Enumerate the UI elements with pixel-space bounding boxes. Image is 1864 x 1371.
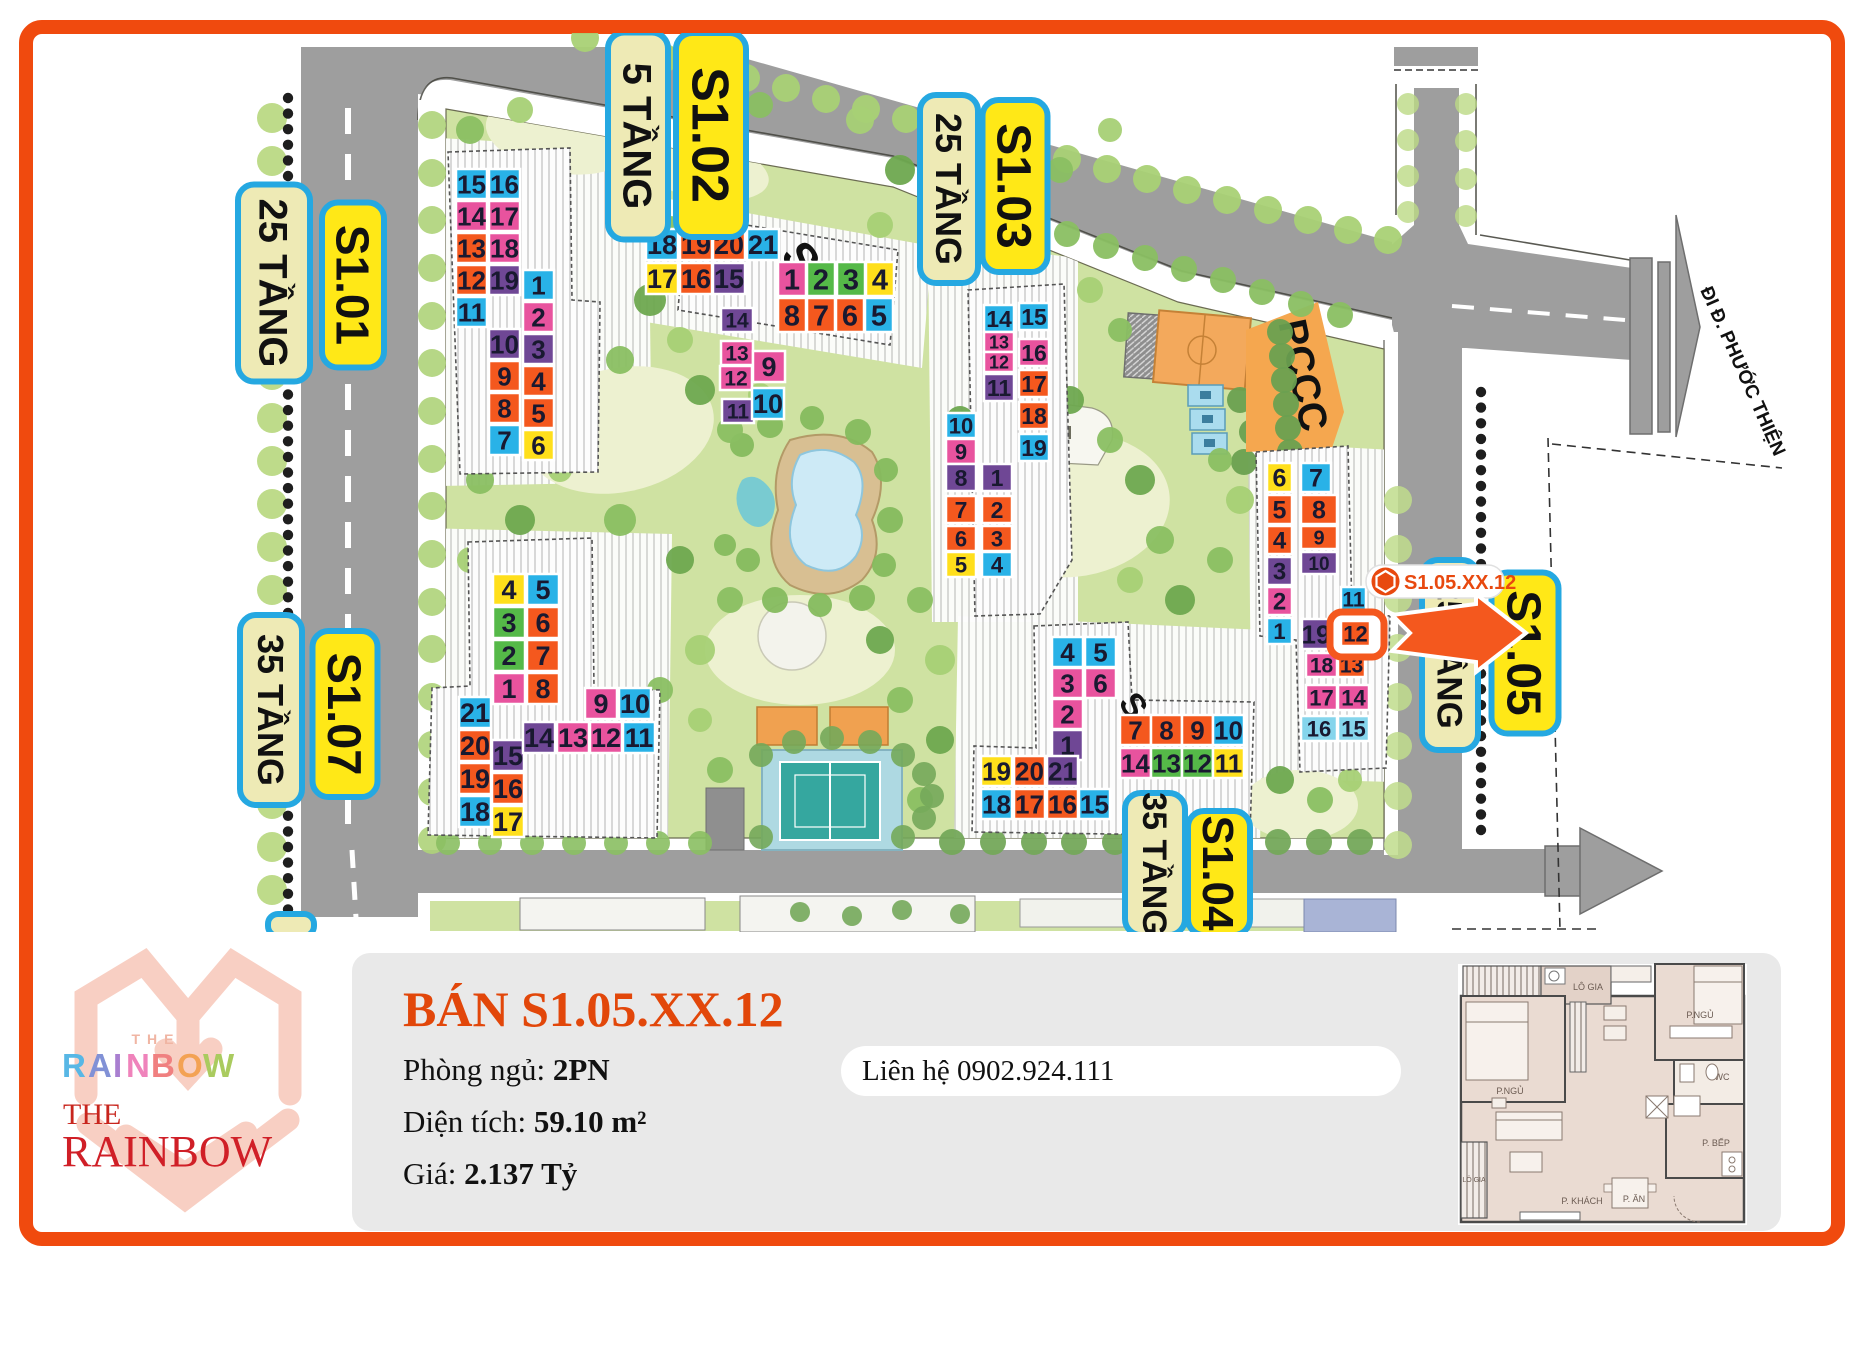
svg-text:16: 16 [493, 774, 523, 804]
svg-text:25 TẦNG: 25 TẦNG [928, 113, 969, 265]
svg-text:18: 18 [1021, 403, 1047, 429]
svg-text:10: 10 [949, 413, 973, 438]
svg-text:BÁN S1.05.XX.12: BÁN S1.05.XX.12 [403, 981, 784, 1037]
svg-text:THE: THE [132, 1031, 181, 1047]
svg-text:11: 11 [625, 723, 654, 753]
svg-text:15: 15 [493, 741, 523, 771]
svg-text:10: 10 [620, 689, 650, 719]
svg-text:4: 4 [501, 575, 516, 605]
svg-text:S1.03: S1.03 [987, 123, 1040, 248]
svg-text:14: 14 [1341, 685, 1366, 710]
svg-text:17: 17 [1021, 371, 1047, 397]
svg-text:8: 8 [497, 393, 511, 423]
svg-text:11: 11 [1215, 748, 1243, 778]
svg-text:5: 5 [1273, 497, 1287, 525]
svg-text:S1.04: S1.04 [1193, 816, 1242, 932]
svg-text:20: 20 [1015, 756, 1044, 786]
svg-text:9: 9 [1313, 528, 1324, 550]
svg-text:5: 5 [955, 552, 967, 577]
svg-text:11: 11 [458, 297, 486, 327]
svg-text:RAINBOW: RAINBOW [62, 1127, 273, 1176]
svg-text:4: 4 [1273, 528, 1287, 555]
svg-text:10: 10 [1214, 715, 1243, 745]
svg-text:13: 13 [558, 723, 588, 753]
svg-text:9: 9 [1190, 715, 1204, 745]
svg-text:18: 18 [460, 797, 490, 827]
svg-text:2: 2 [501, 641, 516, 671]
svg-text:7: 7 [1309, 465, 1323, 493]
svg-text:17: 17 [1015, 789, 1044, 819]
svg-text:14: 14 [725, 310, 749, 333]
svg-text:13: 13 [1152, 748, 1181, 778]
svg-text:2: 2 [531, 302, 545, 332]
svg-text:15: 15 [714, 264, 744, 294]
svg-text:21: 21 [748, 230, 778, 260]
svg-text:17: 17 [647, 264, 677, 294]
svg-text:16: 16 [1307, 716, 1331, 741]
svg-text:14: 14 [986, 306, 1012, 332]
svg-text:15: 15 [1021, 304, 1047, 330]
svg-text:P. BẾP: P. BẾP [1702, 1138, 1730, 1148]
svg-text:7: 7 [813, 300, 829, 332]
svg-text:1: 1 [531, 270, 545, 300]
svg-text:7: 7 [955, 497, 968, 523]
svg-text:19: 19 [460, 764, 490, 794]
svg-text:S1.07: S1.07 [318, 653, 371, 776]
svg-text:Diện tích: 59.10 m²: Diện tích: 59.10 m² [403, 1104, 646, 1139]
svg-text:Phòng ngủ: 2PN: Phòng ngủ: 2PN [403, 1052, 610, 1087]
svg-text:14: 14 [457, 201, 486, 231]
svg-text:18: 18 [1310, 655, 1334, 678]
svg-text:7: 7 [535, 641, 550, 671]
svg-text:4: 4 [531, 366, 546, 396]
svg-text:3: 3 [843, 264, 859, 296]
svg-text:9: 9 [955, 439, 967, 464]
svg-text:19: 19 [982, 756, 1011, 786]
svg-text:12: 12 [724, 368, 747, 391]
svg-text:13: 13 [989, 332, 1009, 352]
svg-text:16: 16 [1021, 340, 1047, 366]
svg-text:8: 8 [1159, 715, 1173, 745]
svg-text:P. ĂN: P. ĂN [1623, 1194, 1645, 1204]
svg-text:5: 5 [535, 575, 550, 605]
svg-text:Liên hệ 0902.924.111: Liên hệ 0902.924.111 [862, 1055, 1114, 1087]
svg-text:14: 14 [1121, 748, 1150, 778]
svg-text:10: 10 [753, 389, 783, 419]
svg-text:3: 3 [501, 608, 516, 638]
svg-text:4: 4 [1060, 637, 1075, 667]
svg-text:11: 11 [1342, 589, 1365, 612]
svg-text:19: 19 [1302, 619, 1331, 649]
svg-text:10: 10 [490, 329, 519, 359]
svg-text:21: 21 [1048, 756, 1077, 786]
svg-text:S1.05.XX.12: S1.05.XX.12 [1404, 572, 1516, 594]
svg-text:9: 9 [761, 352, 776, 382]
svg-text:2: 2 [991, 497, 1004, 523]
svg-text:13: 13 [725, 343, 748, 366]
svg-text:7: 7 [1128, 715, 1142, 745]
svg-text:11: 11 [987, 375, 1012, 401]
svg-text:16: 16 [490, 169, 519, 199]
svg-text:19: 19 [490, 265, 519, 295]
svg-text:5: 5 [871, 300, 887, 332]
svg-text:17: 17 [1309, 685, 1333, 710]
svg-text:3: 3 [991, 526, 1003, 551]
svg-text:2: 2 [1060, 699, 1074, 729]
svg-text:P.NGỦ: P.NGỦ [1496, 1085, 1523, 1096]
svg-text:18: 18 [490, 233, 519, 263]
svg-text:1: 1 [784, 264, 800, 296]
svg-text:20: 20 [460, 731, 490, 761]
svg-text:1: 1 [501, 674, 516, 704]
svg-text:12: 12 [1343, 621, 1367, 646]
svg-text:3: 3 [1060, 668, 1074, 698]
svg-text:4: 4 [991, 552, 1004, 577]
svg-text:6: 6 [1273, 465, 1287, 493]
svg-text:12: 12 [457, 265, 486, 295]
svg-text:6: 6 [535, 608, 550, 638]
svg-text:18: 18 [982, 789, 1011, 819]
svg-text:1: 1 [1273, 619, 1285, 644]
svg-text:6: 6 [531, 430, 545, 460]
svg-text:15: 15 [1341, 716, 1365, 741]
svg-text:15: 15 [1080, 789, 1109, 819]
svg-text:15: 15 [457, 169, 486, 199]
svg-text:LÔ GIA: LÔ GIA [1462, 1175, 1486, 1184]
svg-text:21: 21 [460, 698, 490, 728]
svg-text:Giá: 2.137 Tỷ: Giá: 2.137 Tỷ [403, 1156, 578, 1191]
svg-text:2: 2 [813, 264, 829, 296]
svg-text:3: 3 [531, 334, 545, 364]
svg-text:S1.01: S1.01 [326, 225, 378, 345]
svg-text:16: 16 [1048, 789, 1077, 819]
svg-text:14: 14 [524, 723, 554, 753]
svg-text:9: 9 [497, 361, 511, 391]
svg-text:7: 7 [497, 425, 511, 455]
svg-text:16: 16 [681, 264, 711, 294]
svg-text:5: 5 [531, 398, 545, 428]
svg-text:35 TẦNG: 35 TẦNG [250, 634, 291, 786]
svg-text:12: 12 [989, 352, 1009, 372]
svg-text:8: 8 [1312, 497, 1326, 525]
svg-text:S1.05: S1.05 [1497, 590, 1550, 715]
svg-text:1: 1 [991, 465, 1004, 491]
svg-text:8: 8 [784, 300, 800, 332]
svg-text:8: 8 [535, 674, 550, 704]
svg-text:13: 13 [457, 233, 486, 263]
svg-text:17: 17 [490, 201, 519, 231]
svg-text:25 TẦNG: 25 TẦNG [251, 199, 297, 368]
svg-text:P.NGỦ: P.NGỦ [1686, 1009, 1713, 1020]
svg-text:8: 8 [955, 465, 968, 491]
svg-text:R A I N B O W: R A I N B O W [62, 1047, 235, 1084]
svg-text:11: 11 [727, 401, 750, 424]
svg-text:6: 6 [955, 526, 967, 551]
svg-text:S1.02: S1.02 [680, 67, 738, 203]
svg-text:19: 19 [1021, 435, 1047, 461]
svg-text:3: 3 [1273, 559, 1286, 586]
svg-text:9: 9 [593, 689, 608, 719]
svg-text:5 TẦNG: 5 TẦNG [615, 63, 661, 210]
svg-text:6: 6 [842, 300, 858, 332]
svg-text:5: 5 [1093, 637, 1107, 667]
svg-text:35 TẦNG: 35 TẦNG [1135, 792, 1173, 936]
svg-text:12: 12 [1183, 748, 1212, 778]
svg-text:6: 6 [1093, 668, 1107, 698]
svg-text:2: 2 [1273, 589, 1286, 616]
svg-text:LÔ GIA: LÔ GIA [1573, 982, 1603, 992]
svg-text:10: 10 [1308, 554, 1329, 575]
svg-text:4: 4 [872, 264, 888, 296]
svg-text:12: 12 [591, 723, 621, 753]
svg-text:17: 17 [493, 807, 523, 837]
svg-text:P. KHÁCH: P. KHÁCH [1561, 1196, 1602, 1206]
